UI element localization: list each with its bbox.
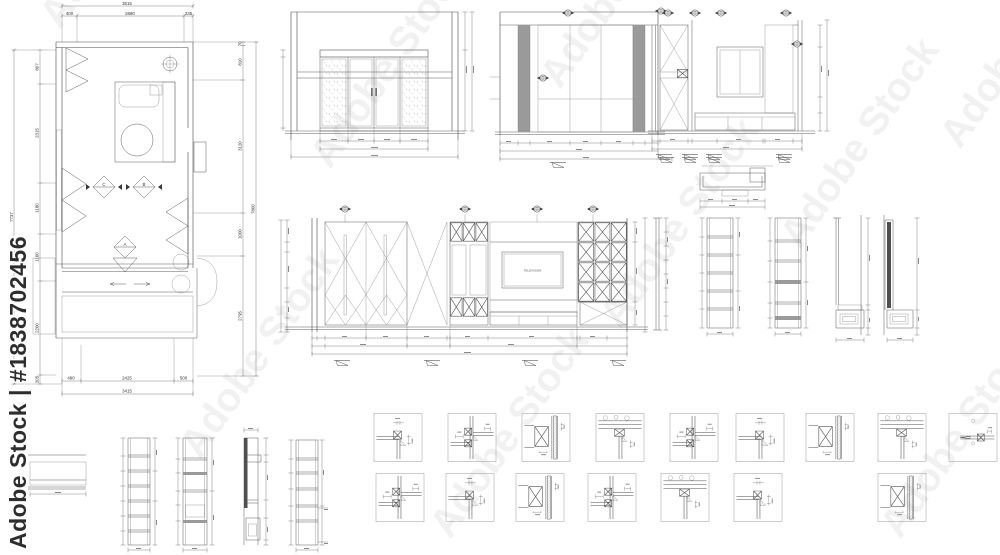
watermark-tile-text: Adobe Stock — [871, 319, 1000, 545]
tall-cabinet-elevations — [121, 428, 329, 553]
ac-ladder-hatch — [33, 258, 55, 334]
dim-left-seg: 1180 — [35, 203, 40, 213]
television-label: TELEVISION — [524, 269, 542, 273]
section-marker-b: B — [126, 176, 162, 198]
plant — [172, 275, 190, 293]
wardrobe-doors-right — [166, 198, 188, 254]
dim-bottom-seg: 490 — [67, 376, 75, 381]
cad-drawing-sheet: Adobe Stock Adobe Stock Adobe Stock Adob… — [0, 0, 1000, 555]
section-marker-letter: C — [102, 182, 105, 187]
closet-doors-top — [66, 48, 88, 92]
watermark-tile-text: Adobe Stock — [171, 239, 348, 465]
detail-callout — [791, 41, 803, 47]
section-marker-letter: B — [143, 182, 146, 187]
elevation-feature-dims — [500, 135, 672, 168]
dim-right-seg: 2795 — [238, 311, 243, 321]
joinery-detail-square — [516, 473, 564, 521]
column-band — [633, 25, 645, 132]
joinery-detail-square — [806, 413, 854, 461]
cabinet-section-2 — [700, 218, 741, 337]
detail-callout — [715, 10, 727, 16]
detail-callout — [531, 206, 543, 212]
dim-right-seg: 1000 — [238, 229, 243, 239]
joinery-detail-square — [588, 473, 636, 521]
wall-hatch — [57, 130, 62, 230]
watermark-tile-text: Adobe Stock — [931, 0, 1000, 155]
watermark-tiles: Adobe Stock Adobe Stock Adobe Stock Adob… — [31, 0, 1000, 545]
dim-left-seg: 1100 — [35, 252, 40, 262]
dim-left-overall: 7737 — [9, 212, 14, 222]
break-mark — [776, 158, 792, 163]
tv-pier — [450, 222, 488, 325]
joinery-detail-square — [734, 473, 782, 521]
break-mark — [424, 361, 440, 366]
dim-right-overall: 7800 — [251, 204, 256, 214]
column-band — [518, 25, 530, 132]
dim-bottom-seg: 500 — [180, 376, 188, 381]
dim-right-seg: 810 — [238, 58, 243, 66]
section-markers: C B A — [86, 176, 162, 272]
cabinet-section-4 — [833, 215, 871, 343]
floor-plan-dims-right: 70 810 3120 1000 2795 7800 — [193, 41, 259, 376]
dim-top-seg: 2880 — [125, 11, 135, 16]
dim-top-seg: 235 — [185, 11, 193, 16]
joinery-detail-square — [736, 413, 784, 461]
detail-callout — [689, 10, 701, 16]
break-mark — [656, 155, 672, 160]
floor-plan-furniture — [62, 48, 217, 306]
cad-drawing-canvas: Adobe Stock Adobe Stock Adobe Stock Adob… — [0, 0, 1000, 555]
detail-callout — [780, 10, 792, 16]
detail-callout — [339, 206, 351, 212]
dim-bottom-overall: 3415 — [122, 389, 132, 394]
x-cabinet — [660, 25, 688, 130]
slat-band-top — [490, 222, 577, 242]
tall-cabinet-3 — [244, 428, 269, 546]
dim-right-seg: 70 — [238, 41, 243, 46]
dim-left-seg: 2200 — [35, 323, 40, 333]
slat-screen — [765, 25, 793, 113]
joinery-detail-square — [374, 413, 422, 461]
dim-top-seg: 400 — [66, 11, 74, 16]
watermark-side-text: Adobe Stock | #1838702456 — [5, 236, 31, 549]
floor-plan: 3515 400 2880 235 7737 807 2315 1180 110… — [9, 1, 259, 397]
break-mark — [610, 361, 626, 366]
dim-left-seg: 807 — [35, 63, 40, 71]
detail-callout — [459, 206, 471, 212]
joinery-detail-square — [670, 413, 718, 461]
tall-cabinet-4 — [289, 440, 329, 553]
section-marker-c: C — [86, 176, 122, 198]
joinery-detail-square — [596, 413, 644, 461]
cabinet-section-5 — [884, 215, 920, 343]
floor-plan-dims-bottom: 490 2425 500 3415 — [62, 338, 193, 397]
balustrade-detail — [28, 455, 86, 497]
tall-cabinet-1 — [121, 438, 158, 553]
detail-callout — [587, 206, 599, 212]
watermark-tile-text: Adobe Stock — [31, 0, 208, 35]
section-marker-a: A — [113, 236, 137, 272]
door-swings — [197, 258, 217, 306]
break-mark — [550, 163, 566, 168]
dim-top-overall: 3515 — [122, 1, 132, 6]
balcony-tiles — [62, 296, 193, 332]
sofa-set — [115, 82, 175, 162]
dim-left-seg: 2315 — [35, 128, 40, 138]
section-marker-letter: A — [124, 242, 127, 247]
slat-band-bottom — [490, 300, 577, 312]
return-wall-brace — [407, 222, 447, 325]
joinery-detail-square — [661, 473, 709, 521]
television: TELEVISION — [502, 252, 563, 288]
dim-right-seg: 3120 — [238, 141, 243, 151]
joinery-detail-square — [376, 473, 424, 521]
wardrobe-doors-left — [62, 168, 86, 232]
dim-left-seg: 205 — [35, 375, 40, 383]
plant — [173, 254, 189, 270]
lattice-window — [717, 47, 763, 97]
sliding-door-arrows — [110, 283, 150, 286]
hall-cabinet — [194, 142, 206, 172]
dim-bottom-seg: 2425 — [122, 376, 132, 381]
break-mark — [658, 158, 674, 163]
watermark-tile-text: Adobe Stock — [531, 0, 708, 95]
ceiling-light — [161, 55, 179, 73]
break-mark — [334, 361, 350, 366]
